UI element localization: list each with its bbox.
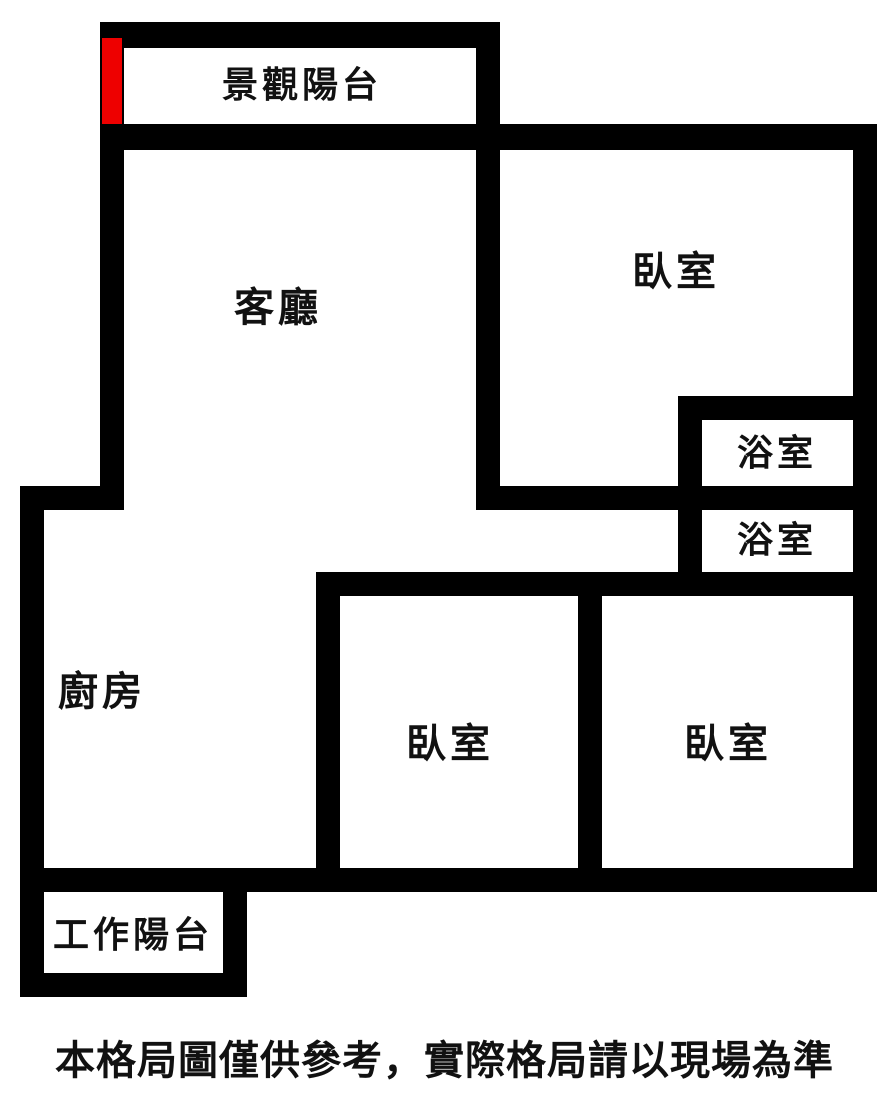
wall-bedroom-divider [578, 572, 602, 892]
entrance-marker [102, 38, 122, 124]
wall-unit-bottom [20, 868, 877, 892]
room-label-living-room: 客廳 [234, 288, 322, 328]
wall-bedroom-middle-left [316, 572, 340, 892]
room-label-bedroom-right: 臥室 [684, 724, 772, 764]
room-label-bedroom-top: 臥室 [632, 252, 720, 292]
room-label-scenic-balcony: 景觀陽台 [222, 67, 382, 103]
floor-plan: 景觀陽台 客廳 臥室 浴室 浴室 廚房 臥室 臥室 工作陽台 本格局圖僅供參考，… [0, 0, 889, 1108]
room-label-kitchen: 廚房 [58, 672, 146, 712]
disclaimer-text: 本格局圖僅供參考，實際格局請以現場為準 [55, 1028, 834, 1086]
wall-balcony-top [100, 22, 478, 48]
wall-bathroom-top [678, 396, 877, 420]
wall-unit-top [100, 124, 877, 150]
room-label-bathroom-lower: 浴室 [737, 522, 817, 558]
room-label-bathroom-upper: 浴室 [737, 435, 817, 471]
wall-work-balcony-bottom [20, 973, 247, 997]
wall-center-divider [476, 22, 500, 510]
room-label-work-balcony: 工作陽台 [53, 917, 213, 953]
wall-left-kitchen [20, 486, 44, 997]
wall-bathroom-divider [476, 486, 877, 510]
room-label-bedroom-middle: 臥室 [406, 724, 494, 764]
